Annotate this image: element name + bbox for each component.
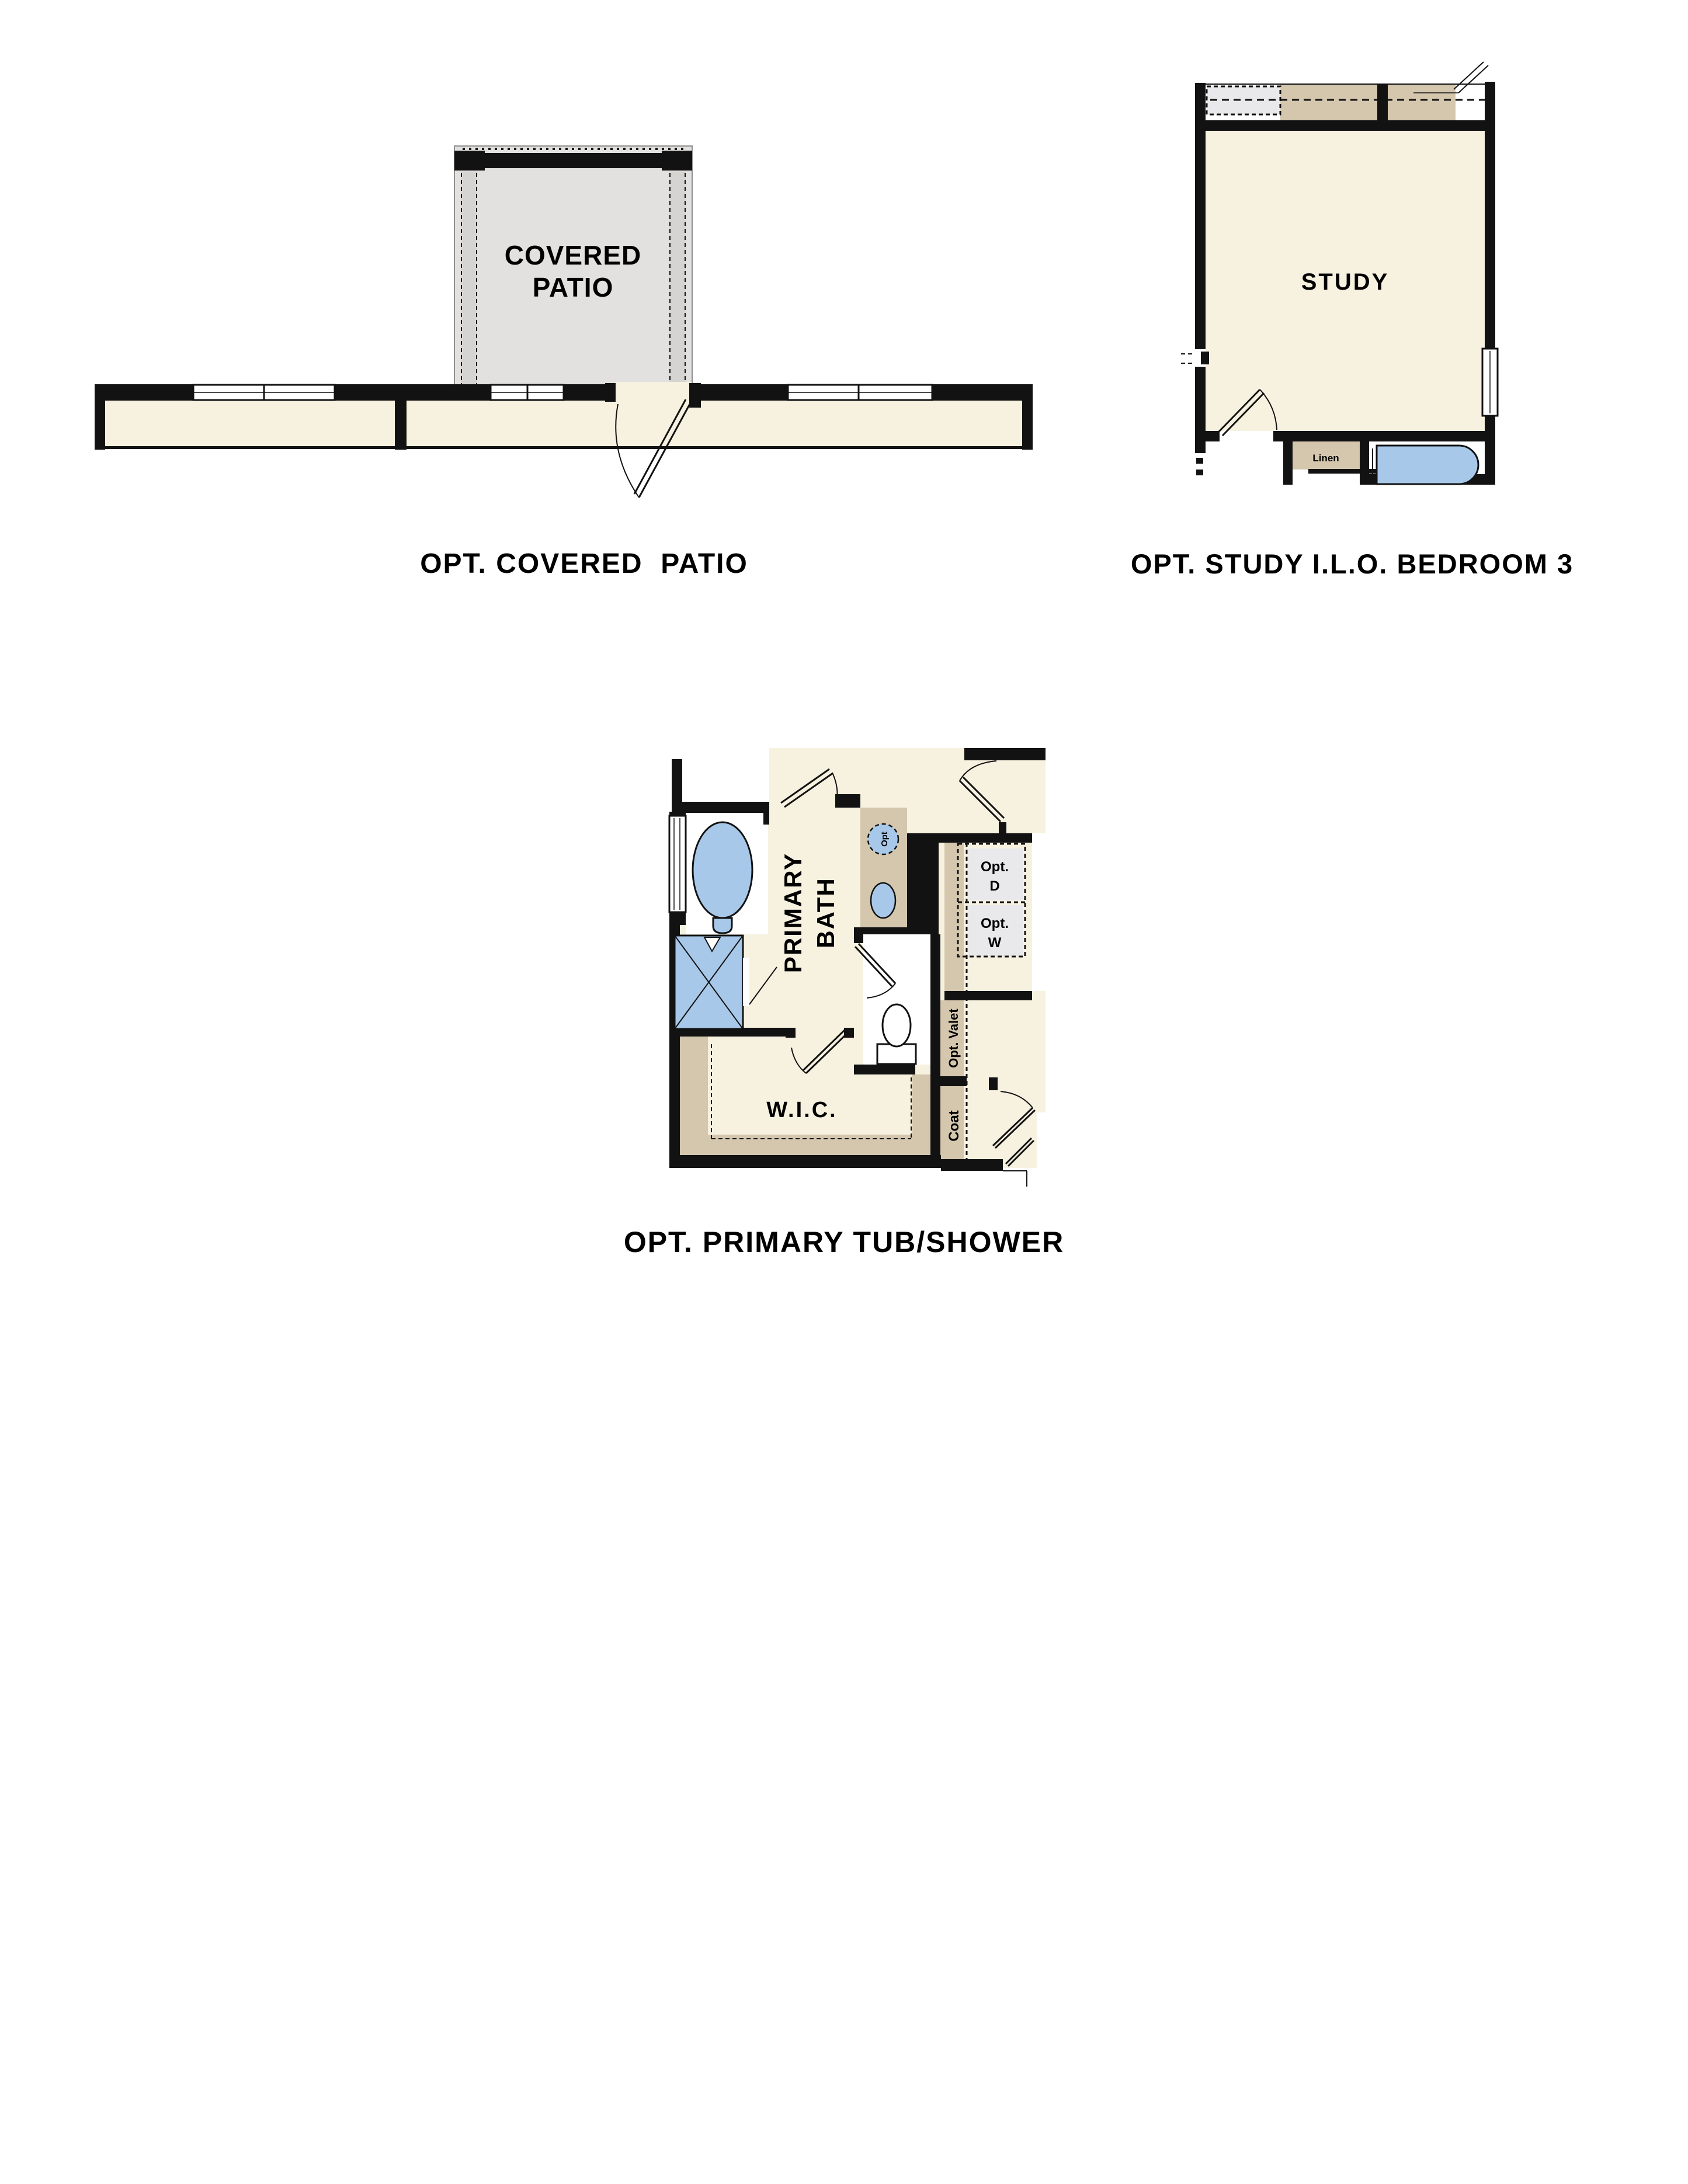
bathtub-icon xyxy=(1373,446,1478,484)
window xyxy=(1482,349,1498,416)
coat-label: Coat xyxy=(946,1110,962,1141)
closet-strip xyxy=(1195,62,1488,120)
sink-icon xyxy=(871,883,895,918)
opt-washer-label-line2: W xyxy=(988,935,1002,951)
opt-washer-label-line1: Opt. xyxy=(981,916,1009,931)
caption-covered-patio: OPT. COVERED PATIO xyxy=(111,548,1057,580)
window xyxy=(669,816,686,912)
bath-room-label-line1: PRIMARY xyxy=(779,853,807,973)
wic-label: W.I.C. xyxy=(766,1098,837,1122)
window xyxy=(788,385,932,400)
bath-room-label-line2: BATH xyxy=(812,877,839,948)
primary-bath-plan: Opt. D Opt. W xyxy=(607,742,1051,1191)
hose-bib-icon xyxy=(1181,352,1209,364)
opt-dryer-label-line1: Opt. xyxy=(981,859,1009,875)
window xyxy=(491,385,564,400)
covered-patio-plan: COVERED PATIO xyxy=(88,140,1046,473)
opt-valet-label: Opt. Valet xyxy=(946,1008,961,1068)
window xyxy=(193,385,335,400)
caption-study: OPT. STUDY I.L.O. BEDROOM 3 xyxy=(1104,548,1600,580)
floor-plan-sheet: COVERED PATIO xyxy=(0,0,1688,2184)
patio-room-label-line1: COVERED xyxy=(505,240,641,270)
linen-closet: Linen xyxy=(1283,441,1382,485)
opt-dryer-label-line2: D xyxy=(989,878,999,894)
caption-primary-tub-shower: OPT. PRIMARY TUB/SHOWER xyxy=(610,1225,1078,1259)
optional-sink-icon: Opt xyxy=(868,824,898,854)
linen-label: Linen xyxy=(1312,453,1339,464)
study-room-label: STUDY xyxy=(1301,269,1390,295)
opt-sink-label: Opt xyxy=(880,832,890,847)
patio-room-label-line2: PATIO xyxy=(533,272,614,302)
study-plan: Linen STUDY xyxy=(1177,58,1621,496)
